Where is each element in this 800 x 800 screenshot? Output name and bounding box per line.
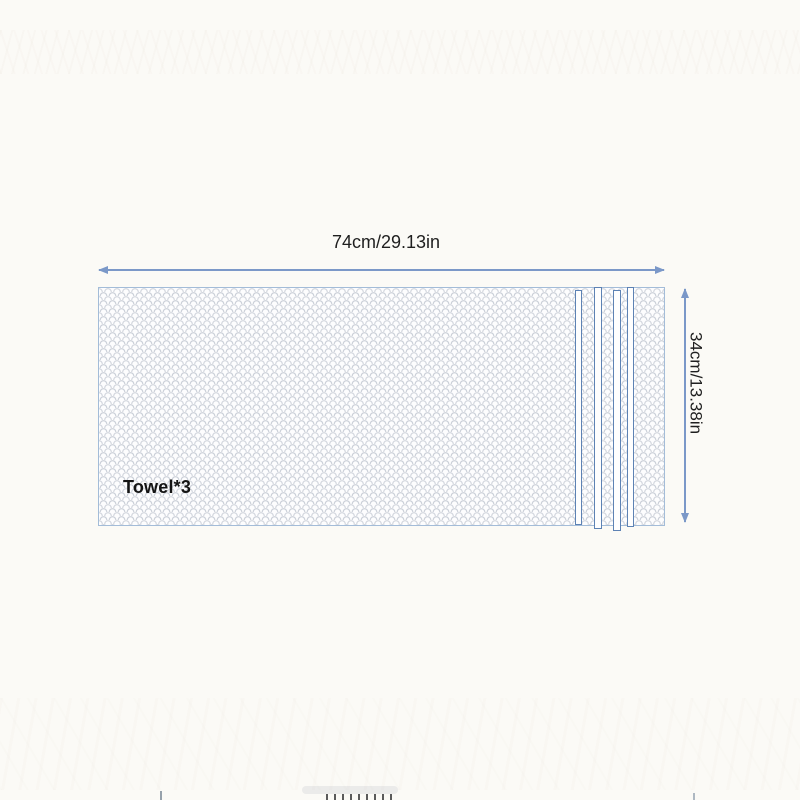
product-dimension-diagram: 74cm/29.13in Towel*3 34cm/13.38in: [0, 0, 800, 800]
towel-stripe: [594, 287, 602, 529]
towel-illustration: Towel*3: [98, 287, 665, 526]
cutoff-mark-dots: [326, 794, 394, 800]
towel-stripe: [613, 290, 621, 531]
towel-stripe: [575, 290, 582, 525]
cutoff-mark-halo: [302, 786, 398, 794]
width-dimension-label: 74cm/29.13in: [286, 233, 486, 253]
width-arrow-icon: [99, 269, 664, 271]
product-name-label: Towel*3: [123, 477, 191, 498]
towel-stripe: [627, 287, 634, 527]
background-artifact-top: [0, 30, 800, 74]
background-artifact-bottom: [0, 698, 800, 790]
height-dimension-label: 34cm/13.38in: [686, 332, 705, 434]
cutoff-mark-right: [693, 793, 695, 800]
cutoff-mark-left: [160, 791, 162, 800]
